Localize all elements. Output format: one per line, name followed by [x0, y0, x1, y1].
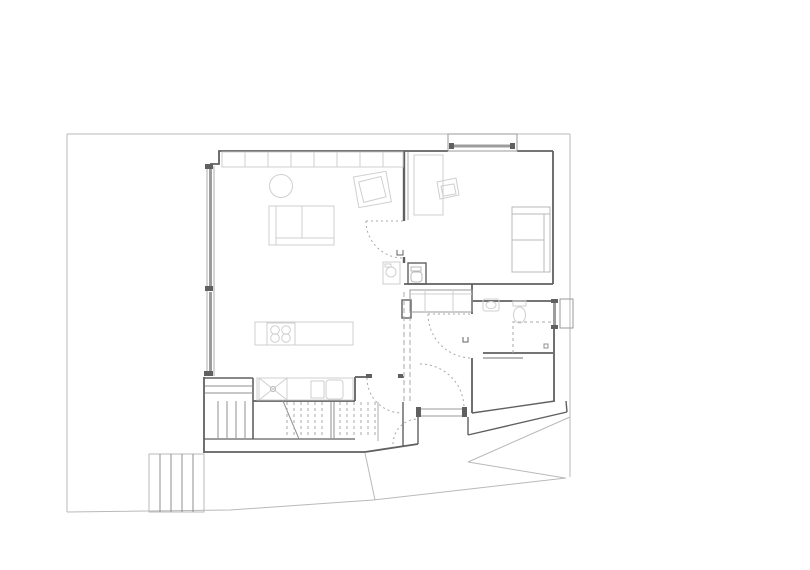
- site-boundary-bottom: [67, 478, 566, 512]
- wc-bowl: [411, 272, 422, 282]
- kitchen-counter: [257, 378, 353, 400]
- bathroom-window-cap-top: [551, 299, 558, 303]
- appliance-1: [311, 381, 324, 398]
- entry-door-arc: [420, 364, 464, 408]
- slant-wall-inner: [472, 401, 555, 413]
- bathroom-door-pivot: [463, 337, 468, 342]
- bathroom-window-sill-box: [560, 299, 573, 328]
- cooktop-burner: [282, 326, 291, 335]
- slant-wall-outer: [468, 412, 567, 435]
- bedroom-window-cap-left: [449, 143, 454, 149]
- doors: [366, 221, 472, 444]
- wc-cistern: [411, 267, 421, 271]
- armchair-outer: [353, 171, 391, 207]
- floor-plan-canvas: [0, 0, 810, 570]
- exterior-stair-outline: [149, 454, 204, 512]
- desk-chair-outer: [437, 178, 459, 199]
- bedroom-window-cap-right: [510, 143, 515, 149]
- terrain-line-a: [365, 453, 375, 500]
- window-cap-mid: [205, 286, 213, 291]
- entry-jamb-left: [416, 407, 421, 417]
- furniture-bathroom: [483, 299, 554, 358]
- window-cap-bottom: [204, 371, 213, 376]
- cooktop-burner: [271, 326, 280, 335]
- wc-closet-box: [408, 263, 426, 284]
- armchair-inner: [359, 176, 386, 202]
- kitchen-door-hinge: [366, 374, 372, 378]
- cooktop-burner: [271, 334, 280, 343]
- bottom-slant-wall: [365, 444, 418, 452]
- bedroom-window-bay: [448, 134, 517, 151]
- kitchen-door-arc: [367, 378, 402, 413]
- washing-machine-panel: [385, 264, 391, 267]
- terrain-line-c: [468, 462, 565, 478]
- bedroom-door-pivot: [397, 250, 403, 255]
- cooktop: [267, 323, 295, 345]
- slant-conn-right: [566, 401, 567, 412]
- porch-door-arc: [393, 419, 418, 444]
- windows: [204, 134, 573, 376]
- round-table: [270, 175, 293, 198]
- stair-break-line: [283, 401, 299, 439]
- kitchen-island: [255, 322, 353, 345]
- entry-threshold: [419, 409, 463, 416]
- desk: [414, 155, 443, 215]
- shower-drain: [544, 344, 548, 348]
- window-cap-top: [205, 164, 213, 169]
- floor-plan-page: [0, 0, 810, 570]
- entry-jamb-right: [462, 407, 467, 417]
- appliance-2: [326, 380, 343, 399]
- furniture-bedroom: [408, 155, 550, 284]
- washing-machine-drum: [386, 267, 396, 277]
- wall-cabinet-row: [222, 152, 403, 167]
- stairs: [205, 292, 410, 439]
- living-top-wall: [210, 151, 448, 164]
- site-plan: [67, 134, 570, 512]
- bathroom-door-arc: [428, 314, 472, 358]
- furniture-hall: [410, 290, 472, 312]
- kitchen-door-stop: [398, 374, 403, 378]
- toilet-bowl: [514, 307, 526, 323]
- cooktop-burner: [282, 334, 291, 343]
- furniture-living: [222, 152, 403, 400]
- closet-outline: [410, 290, 472, 312]
- bathroom-window-cap-bottom: [551, 325, 558, 329]
- basin-bowl: [486, 302, 496, 309]
